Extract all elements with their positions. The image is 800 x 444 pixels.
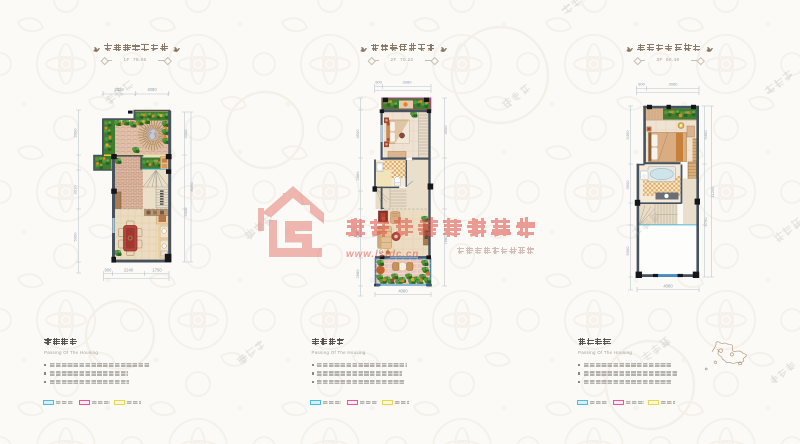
svg-text:11250: 11250 — [710, 186, 715, 198]
svg-text:1750: 1750 — [152, 268, 162, 273]
svg-text:8060: 8060 — [189, 182, 194, 192]
svg-text:2240: 2240 — [124, 268, 134, 273]
svg-text:5060: 5060 — [625, 246, 630, 256]
svg-text:2090: 2090 — [73, 128, 78, 138]
svg-text:3080: 3080 — [403, 79, 413, 84]
svg-text:2680: 2680 — [355, 269, 360, 279]
svg-text:5000: 5000 — [183, 207, 188, 217]
svg-text:5490: 5490 — [625, 130, 630, 140]
svg-text:5760: 5760 — [703, 217, 708, 227]
svg-text:2880: 2880 — [355, 171, 360, 181]
svg-text:5060: 5060 — [73, 232, 78, 242]
svg-text:4500: 4500 — [443, 125, 448, 135]
svg-text:5490: 5490 — [703, 130, 708, 140]
svg-text:4500: 4500 — [355, 129, 360, 139]
svg-text:4080: 4080 — [147, 87, 157, 92]
svg-text:900: 900 — [375, 79, 382, 84]
svg-text:4080: 4080 — [663, 283, 673, 288]
svg-text:3080: 3080 — [669, 81, 679, 86]
svg-text:4080: 4080 — [398, 288, 408, 293]
svg-text:3010: 3010 — [73, 185, 78, 195]
svg-text:3900: 3900 — [625, 180, 630, 190]
svg-text:3000: 3000 — [183, 129, 188, 139]
svg-text:900: 900 — [638, 81, 645, 86]
svg-text:900: 900 — [105, 268, 113, 273]
